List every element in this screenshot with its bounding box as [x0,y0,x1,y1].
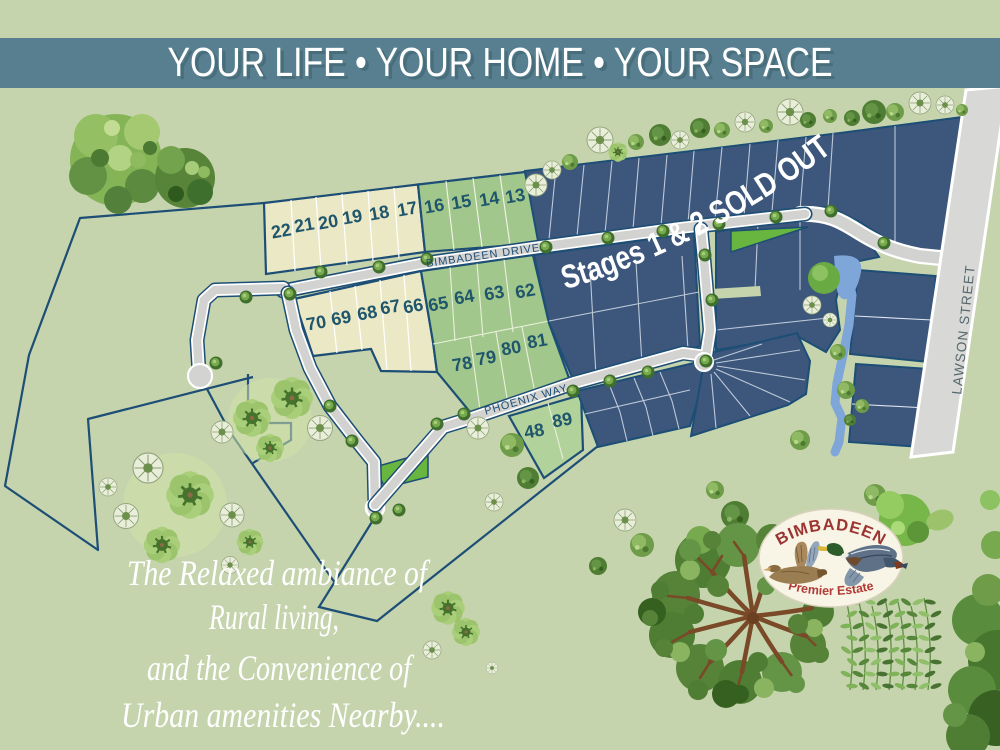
svg-text:69: 69 [330,306,353,329]
svg-text:The Relaxed ambiance of: The Relaxed ambiance of [127,553,431,593]
svg-text:Rural living,: Rural living, [208,597,339,637]
svg-text:64: 64 [453,285,476,308]
svg-text:16: 16 [423,194,446,217]
svg-text:18: 18 [368,201,391,224]
svg-text:63: 63 [483,281,506,304]
svg-text:78: 78 [451,352,474,375]
svg-text:81: 81 [526,329,549,352]
svg-text:YOUR LIFE • YOUR HOME • YOUR S: YOUR LIFE • YOUR HOME • YOUR SPACE [168,39,833,85]
svg-text:21: 21 [293,213,316,236]
svg-text:20: 20 [317,210,340,233]
svg-text:14: 14 [478,187,501,210]
svg-text:and the Convenience of: and the Convenience of [147,648,415,688]
svg-text:66: 66 [402,294,425,317]
svg-text:48: 48 [523,419,546,442]
svg-text:68: 68 [356,301,379,324]
svg-text:62: 62 [514,279,537,302]
svg-text:80: 80 [500,336,523,359]
svg-text:17: 17 [396,197,419,220]
svg-text:19: 19 [341,205,364,228]
svg-text:15: 15 [450,190,473,213]
svg-text:22: 22 [270,219,293,242]
svg-text:70: 70 [305,311,328,334]
svg-text:65: 65 [427,292,450,315]
svg-text:89: 89 [551,408,574,431]
svg-text:67: 67 [379,295,402,318]
svg-text:13: 13 [504,184,527,207]
svg-text:Urban amenities Nearby....: Urban amenities Nearby.... [121,695,445,735]
svg-text:79: 79 [475,346,498,369]
